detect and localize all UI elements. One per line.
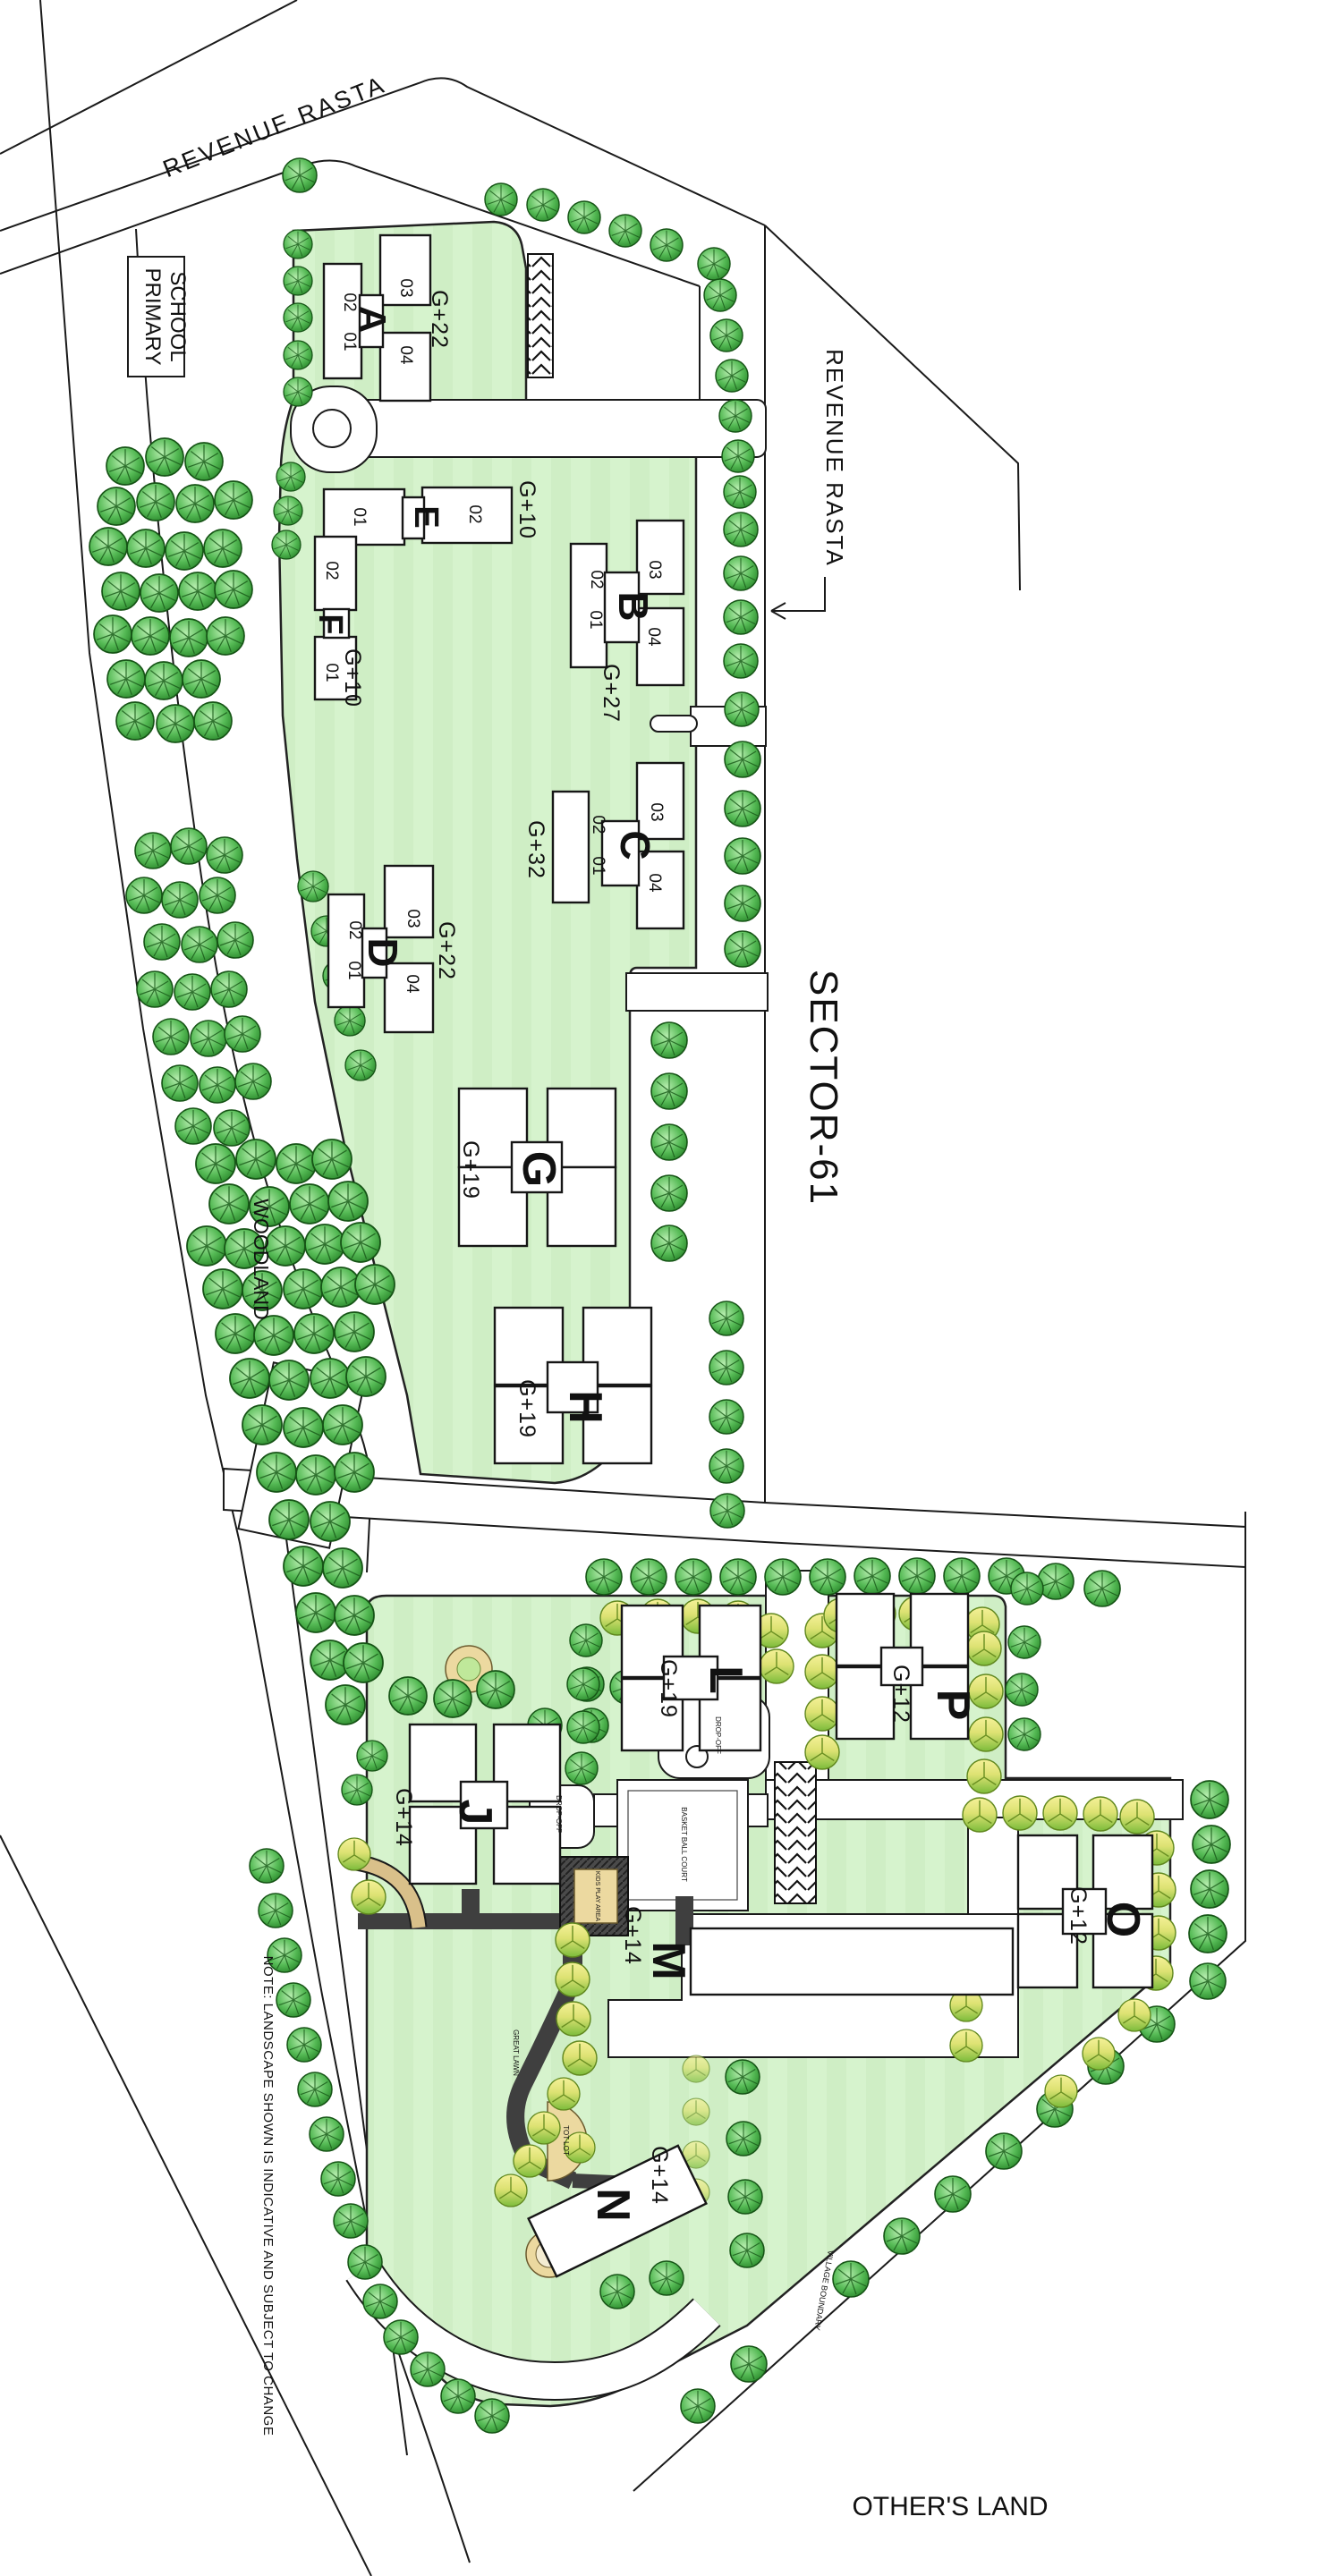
tree-icon	[284, 1408, 323, 1447]
tree-icon	[725, 885, 760, 921]
tree-icon	[341, 1223, 380, 1262]
building-c-unit-04: 04	[645, 873, 664, 893]
tree-icon	[200, 1067, 235, 1103]
tree-icon	[724, 556, 758, 590]
building-d-unit-03: 03	[403, 909, 422, 928]
tree-icon	[709, 1301, 743, 1335]
building-b-unit-01: 01	[586, 610, 605, 629]
tree-icon	[107, 660, 145, 698]
tree-icon	[567, 1668, 599, 1700]
tree-icon	[344, 1643, 383, 1682]
tree-icon	[1043, 1796, 1077, 1830]
tree-icon	[174, 974, 210, 1010]
tree-icon	[283, 158, 317, 192]
building-h-letter: H	[559, 1390, 611, 1424]
tree-icon	[651, 1225, 687, 1261]
building-a-unit-02: 02	[340, 292, 359, 311]
tree-icon	[1191, 1870, 1228, 1908]
building-d-unit-04: 04	[403, 974, 421, 994]
building-b-floors: G+27	[599, 664, 624, 723]
tree-icon	[207, 617, 244, 655]
tree-icon	[709, 1449, 743, 1483]
tree-icon	[310, 2117, 344, 2151]
building-b-letter: B	[610, 591, 657, 621]
tree-icon	[884, 2218, 920, 2254]
tree-icon	[475, 2399, 509, 2433]
tree-icon	[215, 571, 252, 608]
tree-icon	[284, 230, 312, 258]
tree-icon	[182, 927, 217, 962]
tree-icon	[899, 1558, 935, 1594]
tree-icon	[651, 1124, 687, 1160]
tree-icon	[709, 1400, 743, 1434]
dropoff-j-label: DROP-OFF	[555, 1795, 563, 1833]
tree-icon	[203, 1269, 242, 1309]
tree-icon	[312, 1140, 352, 1179]
entry-road-a-b	[358, 400, 766, 457]
tree-icon	[135, 833, 171, 869]
building-a-unit-01: 01	[340, 332, 359, 351]
building-f-unit-02: 02	[322, 561, 341, 580]
building-e-floors: G+10	[514, 480, 539, 539]
tree-icon	[323, 1405, 362, 1445]
tree-icon	[1190, 1963, 1226, 1999]
tree-icon	[153, 1019, 189, 1055]
tree-icon	[171, 828, 207, 864]
tree-icon	[568, 201, 600, 233]
tree-icon	[514, 2145, 546, 2177]
building-e-letter: E	[407, 505, 445, 528]
tree-icon	[681, 2389, 715, 2423]
tree-icon	[1189, 1915, 1227, 1953]
tree-icon	[1038, 1563, 1074, 1599]
tree-icon	[269, 1360, 309, 1400]
tree-icon	[170, 619, 208, 657]
tree-icon	[335, 1005, 365, 1036]
tree-icon	[1193, 1826, 1230, 1863]
tree-icon	[726, 2122, 760, 2156]
tree-icon	[183, 660, 220, 698]
tree-icon	[477, 1671, 514, 1708]
tree-icon	[765, 1559, 801, 1595]
building-o-floors: G+12	[1066, 1886, 1091, 1945]
tree-icon	[1118, 1999, 1151, 2031]
building-o-letter: O	[1097, 1902, 1149, 1937]
building-f-letter: F	[311, 614, 349, 634]
tree-icon	[651, 1073, 687, 1109]
tree-icon	[284, 1269, 323, 1309]
tree-icon	[162, 1065, 198, 1101]
tree-icon	[389, 1677, 427, 1715]
tree-icon	[211, 971, 247, 1007]
tree-icon	[94, 615, 132, 653]
tree-icon	[609, 215, 641, 247]
tree-icon	[335, 1453, 374, 1492]
primary-school-line1: PRIMARY	[140, 268, 165, 366]
tree-icon	[731, 2346, 767, 2382]
tree-icon	[631, 1559, 667, 1595]
tree-icon	[967, 1631, 1001, 1665]
tree-icon	[194, 702, 232, 740]
dropoff-l-label: DROP-OFF	[714, 1716, 722, 1754]
tree-icon	[854, 1558, 890, 1594]
tree-icon	[217, 922, 253, 958]
sand-circle-j-center	[457, 1657, 480, 1681]
tree-icon	[335, 1312, 374, 1352]
tree-icon	[132, 617, 169, 655]
tot-lot-label: TOT LOT	[562, 2125, 570, 2156]
tree-icon	[225, 1016, 260, 1052]
tree-icon	[563, 2041, 597, 2075]
tree-icon	[528, 2112, 560, 2144]
tree-icon	[348, 2245, 382, 2279]
tree-icon	[259, 1894, 293, 1928]
tree-icon	[716, 360, 748, 392]
tree-icon	[698, 248, 730, 280]
tree-icon	[805, 1655, 839, 1689]
building-d-unit-01: 01	[344, 961, 363, 979]
tree-icon	[1083, 1797, 1117, 1831]
building-b-unit-02: 02	[587, 570, 606, 589]
tree-icon	[102, 572, 140, 610]
building-c-unit-02: 02	[589, 815, 607, 834]
tree-icon	[704, 279, 736, 311]
tree-icon	[287, 2028, 321, 2062]
tree-icon	[230, 1359, 269, 1398]
tree-icon	[272, 530, 301, 559]
tree-icon	[323, 1548, 362, 1588]
site-plan-page: REVENUE RASTA REVENUE RASTA SECTOR-61 PR…	[0, 0, 1342, 2576]
tree-icon	[485, 183, 517, 216]
tree-icon	[284, 303, 312, 332]
tree-icon	[116, 702, 154, 740]
great-lawn-label: GREAT LAWN	[512, 2029, 520, 2076]
revenue-rasta-arrow	[771, 577, 825, 619]
sector-label: SECTOR-61	[802, 970, 845, 1206]
tree-icon	[284, 1546, 323, 1586]
tree-icon	[335, 1596, 374, 1635]
tree-icon	[724, 600, 758, 634]
building-c-unit-01: 01	[589, 856, 607, 875]
tree-icon	[651, 1175, 687, 1211]
tree-icon	[250, 1849, 284, 1883]
entry-stub-c	[626, 973, 768, 1011]
building-j-floors: G+14	[391, 1788, 416, 1847]
building-c-unit-03: 03	[647, 802, 666, 821]
kids-play-area-label: KIDS PLAY AREA	[594, 1871, 600, 1921]
tree-icon	[760, 1649, 794, 1683]
tree-icon	[145, 662, 183, 699]
revenue-rasta-right-label: REVENUE RASTA	[821, 349, 848, 567]
tree-icon	[651, 1022, 687, 1058]
tree-icon	[726, 2060, 760, 2094]
tree-icon	[89, 528, 127, 565]
tree-icon	[214, 1110, 250, 1146]
woodland-label: WOODLAND	[250, 1199, 273, 1319]
tree-icon	[720, 1559, 756, 1595]
tree-icon	[274, 496, 302, 525]
tree-icon	[527, 189, 559, 221]
tree-icon	[725, 692, 759, 726]
building-b-unit-03: 03	[645, 560, 664, 579]
tree-icon	[157, 705, 194, 742]
tree-icon	[725, 838, 760, 874]
tree-icon	[650, 229, 683, 261]
building-l-letter: L	[700, 1665, 752, 1694]
tree-icon	[298, 2072, 332, 2106]
building-d-letter: D	[360, 937, 406, 967]
tree-icon	[346, 1357, 386, 1396]
building-j-letter: J	[449, 1800, 501, 1826]
tree-icon	[728, 2180, 762, 2214]
tree-icon	[495, 2174, 527, 2207]
tree-icon	[126, 877, 162, 913]
tree-icon	[724, 476, 756, 508]
tree-icon	[944, 1558, 980, 1594]
tree-icon	[724, 513, 758, 547]
tree-icon	[725, 741, 760, 777]
tree-icon	[556, 1923, 590, 1957]
tree-icon	[257, 1453, 296, 1492]
note-label: NOTE: LANDSCAPE SHOWN IS INDICATIVE AND …	[260, 1956, 276, 2436]
tree-icon	[345, 1050, 376, 1080]
tree-icon	[216, 1314, 255, 1353]
tree-icon	[810, 1559, 845, 1595]
tree-icon	[98, 487, 135, 525]
tree-icon	[833, 2261, 869, 2297]
building-g-letter: G	[513, 1151, 565, 1187]
building-p-floors: G+12	[888, 1665, 913, 1724]
tree-icon	[719, 400, 752, 432]
tree-icon	[284, 267, 312, 295]
tree-icon	[176, 485, 214, 522]
tree-icon	[137, 971, 173, 1007]
tree-icon	[352, 1880, 386, 1914]
tree-icon	[284, 341, 312, 369]
tree-icon	[986, 2133, 1022, 2169]
tree-icon	[106, 447, 144, 485]
building-n-floors: G+14	[647, 2146, 672, 2205]
tree-icon	[294, 1314, 334, 1353]
tree-icon	[683, 2098, 709, 2125]
tree-icon	[321, 2162, 355, 2196]
tree-icon	[276, 1983, 310, 2017]
building-n-letter: N	[587, 2188, 639, 2222]
building-m-letter: M	[642, 1941, 694, 1979]
tree-icon	[310, 1359, 350, 1398]
tree-icon	[963, 1798, 997, 1832]
tree-icon	[1191, 1781, 1228, 1818]
primary-school-line2: SCHOOL	[166, 271, 190, 361]
tree-icon	[805, 1735, 839, 1769]
tree-icon	[254, 1316, 293, 1355]
tree-icon	[357, 1741, 387, 1771]
tree-icon	[137, 483, 174, 521]
tree-icon	[725, 931, 760, 967]
tree-icon	[127, 530, 165, 567]
tree-icon	[175, 1108, 211, 1144]
tree-icon	[950, 2029, 982, 2062]
ramp-south	[775, 1762, 816, 1903]
tree-icon	[441, 2379, 475, 2413]
tree-icon	[298, 871, 328, 902]
building-e-unit-01: 01	[350, 507, 369, 526]
roundabout-island	[313, 410, 351, 447]
building-a-floors: G+22	[427, 290, 452, 349]
tree-icon	[305, 1224, 344, 1264]
tree-icon	[1011, 1572, 1043, 1605]
tree-icon	[1084, 1571, 1120, 1606]
tree-icon	[1008, 1626, 1040, 1658]
tree-icon	[284, 377, 312, 406]
building-g-floors: G+19	[458, 1140, 483, 1199]
tree-icon	[185, 443, 223, 480]
tree-icon	[969, 1717, 1003, 1751]
tree-icon	[363, 2284, 397, 2318]
building-f-unit-01: 01	[322, 663, 341, 682]
building-e-unit-02: 02	[465, 504, 484, 523]
tree-icon	[191, 1021, 226, 1056]
tree-icon	[144, 924, 180, 960]
tree-icon	[548, 2078, 580, 2110]
building-d-floors: G+22	[434, 921, 459, 980]
tree-icon	[1045, 2075, 1077, 2107]
building-m	[691, 1928, 1013, 1995]
building-c-floors: G+32	[523, 820, 548, 879]
tree-icon	[290, 1184, 329, 1224]
tree-icon	[935, 2176, 971, 2212]
tree-icon	[556, 2002, 590, 2036]
tree-icon	[209, 1184, 249, 1224]
building-d-unit-02: 02	[345, 920, 364, 939]
tree-icon	[235, 1063, 271, 1099]
tree-icon	[140, 574, 178, 612]
tree-icon	[567, 1711, 599, 1743]
tree-icon	[276, 462, 305, 491]
tree-icon	[600, 2275, 634, 2309]
tree-icon	[355, 1265, 395, 1304]
building-h-floors: G+19	[514, 1379, 539, 1438]
building-c-letter: C	[612, 830, 658, 860]
tree-icon	[586, 1559, 622, 1595]
tree-icon	[650, 2261, 684, 2295]
tree-icon	[722, 440, 754, 472]
building-m-floors: G+14	[620, 1906, 645, 1965]
road-island-b	[650, 716, 697, 732]
tree-icon	[675, 1559, 711, 1595]
tree-icon	[1008, 1718, 1040, 1750]
basketball-court-label: BASKET BALL COURT	[680, 1807, 688, 1882]
tree-icon	[334, 2204, 368, 2238]
tree-icon	[1120, 1800, 1154, 1834]
tree-icon	[556, 1962, 590, 1996]
building-a-unit-03: 03	[396, 278, 415, 297]
tree-icon	[384, 2320, 418, 2354]
site-plan-drawing: REVENUE RASTA REVENUE RASTA SECTOR-61 PR…	[0, 0, 1342, 2576]
others-land-label: OTHER'S LAND	[852, 2492, 1048, 2521]
tree-icon	[434, 1680, 471, 1717]
tree-icon	[276, 1144, 316, 1183]
tree-icon	[242, 1405, 282, 1445]
tree-icon	[296, 1455, 335, 1495]
tree-icon	[710, 319, 743, 352]
building-l-floors: G+19	[656, 1659, 681, 1718]
tree-icon	[204, 530, 242, 567]
building-f-floors: G+10	[340, 648, 365, 708]
tree-icon	[187, 1226, 226, 1266]
tree-icon	[1083, 2038, 1115, 2070]
tree-icon	[146, 438, 183, 476]
tree-icon	[196, 1144, 235, 1183]
building-b-unit-04: 04	[644, 627, 663, 647]
building-p-letter: P	[927, 1690, 979, 1721]
tree-icon	[411, 2352, 445, 2386]
tree-icon	[236, 1140, 276, 1179]
tree-icon	[683, 2055, 709, 2082]
tree-icon	[565, 1752, 598, 1784]
tree-icon	[725, 791, 760, 826]
tree-icon	[310, 1502, 350, 1541]
tree-icon	[730, 2233, 764, 2267]
tree-icon	[805, 1697, 839, 1731]
tree-icon	[338, 1838, 370, 1870]
tree-icon	[179, 572, 217, 610]
tree-icon	[342, 1775, 372, 1805]
tree-icon	[166, 532, 203, 570]
tree-icon	[570, 1624, 602, 1657]
tree-icon	[200, 877, 235, 913]
building-a-unit-04: 04	[396, 345, 415, 365]
tree-icon	[207, 837, 242, 873]
tree-icon	[710, 1494, 744, 1528]
tree-icon	[724, 644, 758, 678]
tree-icon	[215, 481, 252, 519]
tree-icon	[709, 1351, 743, 1385]
tree-icon	[269, 1500, 309, 1539]
ramp-north	[528, 254, 553, 377]
tree-icon	[967, 1759, 1001, 1793]
tree-icon	[1003, 1796, 1037, 1830]
tree-icon	[326, 1685, 365, 1724]
tree-icon	[328, 1182, 368, 1221]
tree-icon	[1006, 1674, 1038, 1706]
tree-icon	[296, 1593, 335, 1632]
tree-icon	[162, 882, 198, 918]
